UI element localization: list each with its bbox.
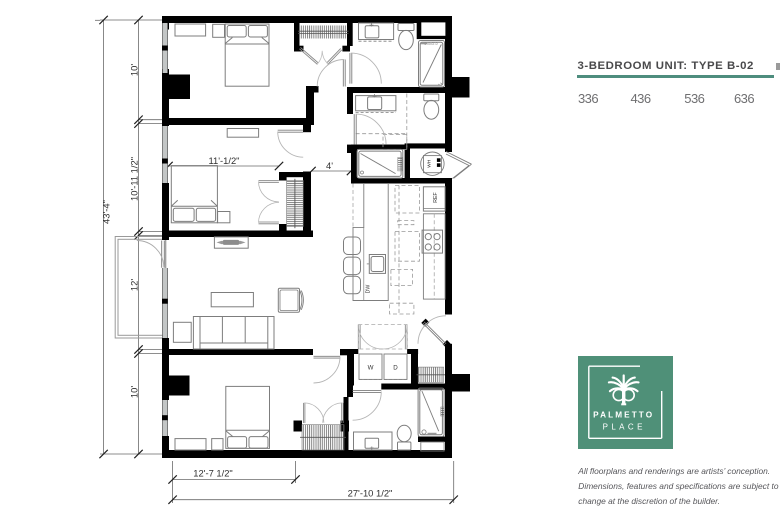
svg-text:PLACE: PLACE: [603, 422, 646, 431]
svg-text:10': 10': [129, 386, 140, 398]
svg-text:27'-10 1/2": 27'-10 1/2": [348, 488, 393, 499]
svg-text:REF: REF: [433, 192, 439, 202]
svg-text:12': 12': [129, 279, 140, 291]
svg-text:10': 10': [129, 64, 140, 76]
svg-text:10'-11 1/2": 10'-11 1/2": [129, 157, 140, 201]
svg-text:D: D: [393, 365, 398, 372]
svg-text:PALMETTO: PALMETTO: [593, 410, 654, 419]
svg-text:DW: DW: [366, 285, 372, 294]
svg-text:W: W: [368, 365, 374, 372]
svg-text:4': 4': [326, 160, 333, 171]
svg-text:11'-1/2": 11'-1/2": [208, 155, 239, 166]
svg-text:43'-4": 43'-4": [101, 200, 112, 224]
svg-text:12'-7 1/2": 12'-7 1/2": [193, 467, 233, 478]
svg-text:WH: WH: [427, 159, 433, 168]
